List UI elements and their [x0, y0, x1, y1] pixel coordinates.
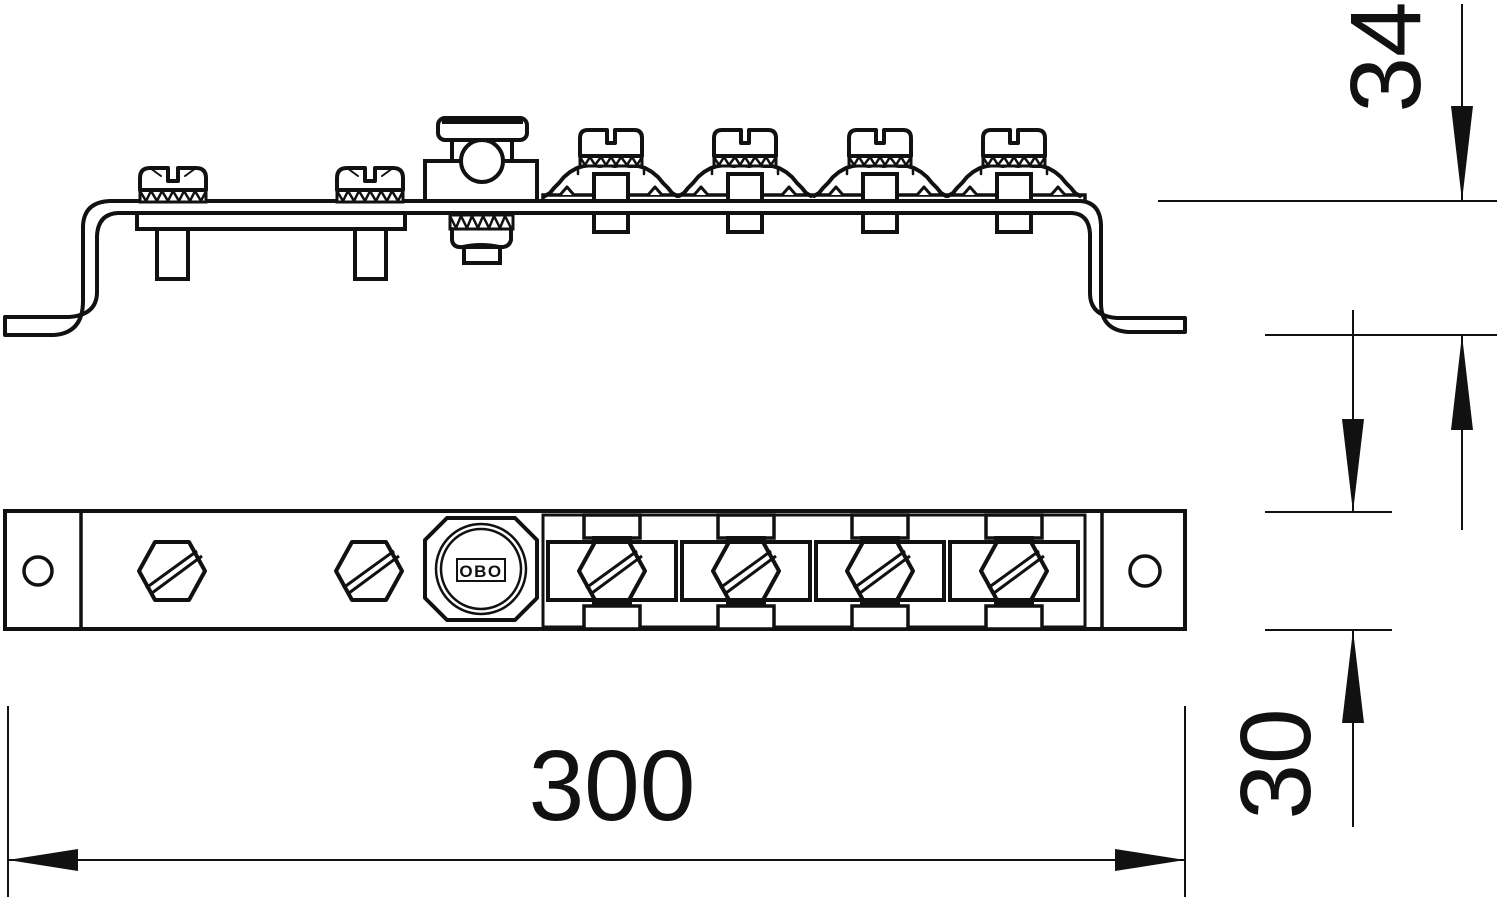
- busbar-drawing: OBO 34 30 300: [0, 0, 1500, 901]
- hex-screw-1-plan: [139, 542, 205, 600]
- clamp-logo-text: OBO: [459, 562, 502, 581]
- hex-screw-2-plan: [336, 542, 402, 600]
- technical-drawing-page: OBO 34 30 300: [0, 0, 1500, 901]
- dim-label-bar-width: 30: [1220, 708, 1332, 819]
- yoke-leg-1: [157, 229, 188, 279]
- plan-view: OBO: [5, 511, 1185, 629]
- yoke-leg-2: [355, 229, 386, 279]
- dim-label-overall-height: 34: [1330, 1, 1442, 112]
- dim-label-overall-length: 300: [529, 730, 696, 842]
- center-clamp-plan: OBO: [425, 518, 537, 620]
